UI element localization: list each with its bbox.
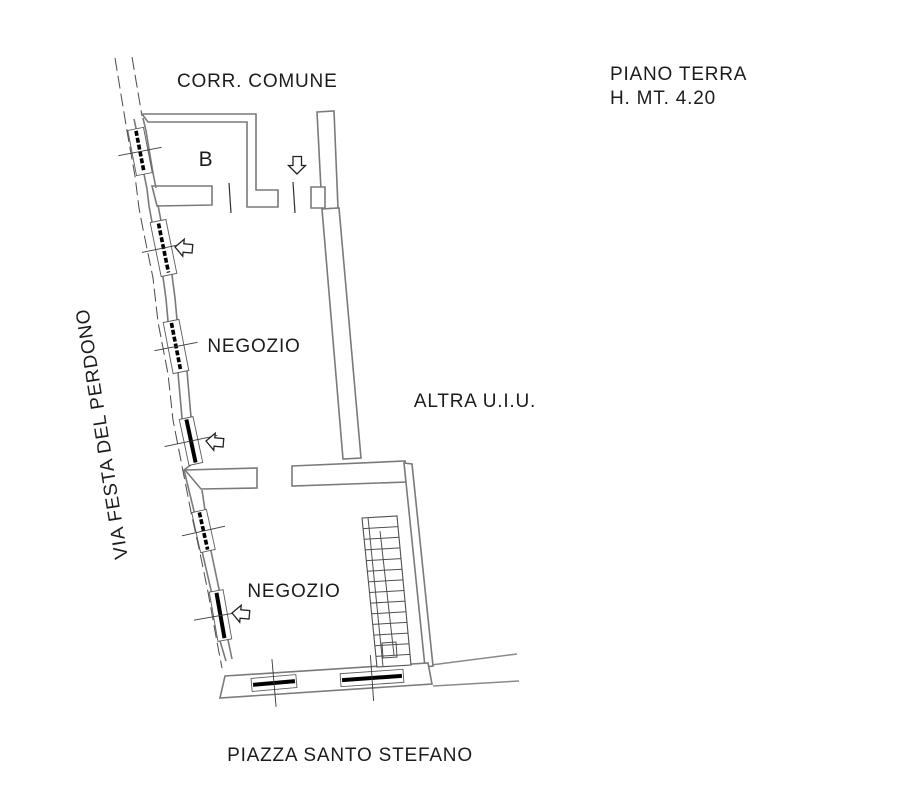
- entrance-arrow-left-lower: [231, 605, 250, 623]
- entrance-arrow-down: [289, 157, 306, 175]
- junction-wall-left-stub: [185, 468, 257, 489]
- floor-plan-canvas: CORR. COMUNE PIANO TERRA H. MT. 4.20 B N…: [0, 0, 924, 806]
- room-b-bottom-wall: [152, 186, 212, 206]
- bottom-wall-opening-1: [249, 657, 298, 709]
- label-via-festa-del-perdono: VIA FESTA DEL PERDONO: [72, 307, 132, 560]
- entrance-arrow-left-middle: [205, 433, 224, 451]
- label-negozio-upper: NEGOZIO: [207, 336, 300, 357]
- floor-plan-page: CORR. COMUNE PIANO TERRA H. MT. 4.20 B N…: [0, 0, 924, 806]
- window-lower-shop-1: [178, 506, 230, 556]
- label-room-b: B: [199, 148, 214, 171]
- label-altra-uiu: ALTRA U.I.U.: [414, 391, 536, 412]
- staircase: [362, 516, 411, 667]
- junction-wall-right: [292, 461, 407, 486]
- label-piazza-santo-stefano: PIAZZA SANTO STEFANO: [227, 745, 473, 766]
- window-room-b: [114, 125, 166, 179]
- bottom-right-street-line-2: [433, 681, 519, 686]
- right-boundary-wall-lower: [322, 208, 361, 459]
- label-piano-terra: PIANO TERRA: [610, 64, 747, 85]
- label-altezza: H. MT. 4.20: [610, 88, 716, 109]
- bottom-right-street-line-1: [431, 654, 517, 665]
- window-upper-shop-2: [149, 317, 202, 376]
- door-leaf-room-b: [229, 183, 231, 213]
- label-negozio-lower: NEGOZIO: [247, 581, 340, 602]
- door-leaf-corridor: [293, 182, 295, 213]
- entrance-arrow-left-upper: [174, 239, 193, 257]
- corridor-door-pillar: [311, 187, 325, 208]
- label-corr-comune: CORR. COMUNE: [177, 71, 338, 92]
- top-street-edge-line: [132, 57, 142, 116]
- windows: [114, 125, 405, 709]
- entrance-arrows: [174, 157, 305, 623]
